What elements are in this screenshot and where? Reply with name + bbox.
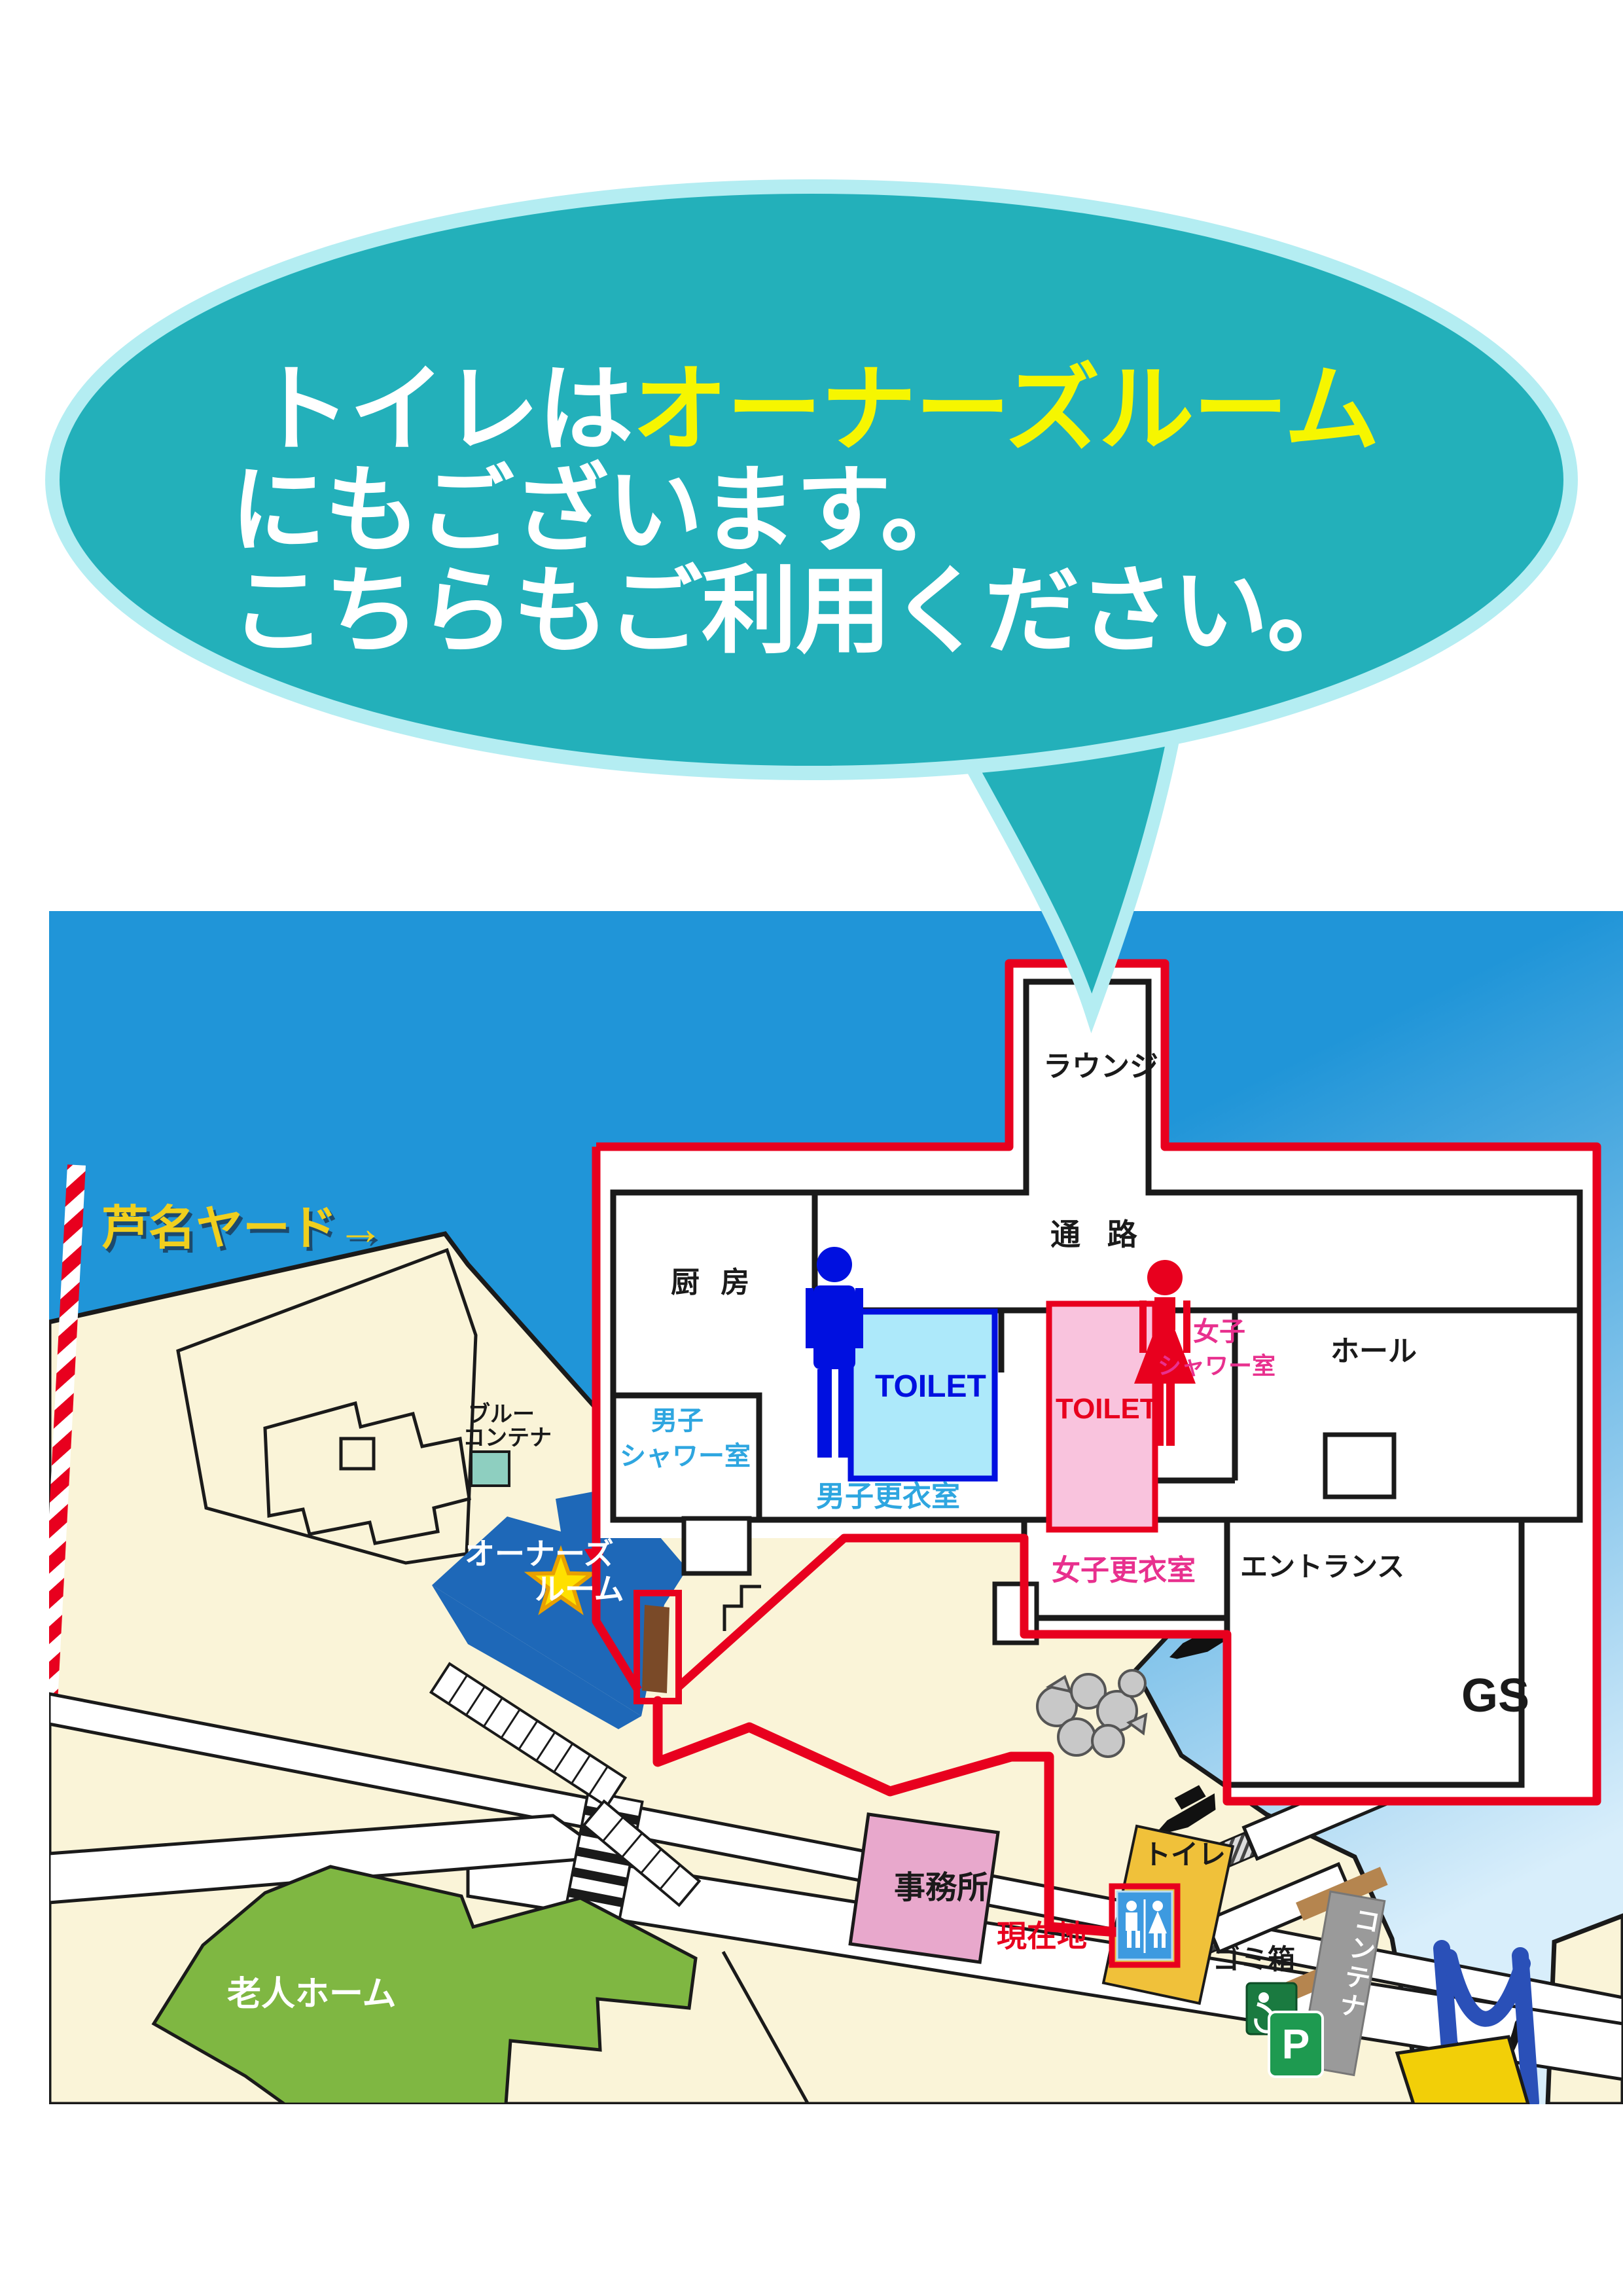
plan-hall-label: ホール [1330, 1336, 1417, 1367]
plan-mens-locker-label: 男子更衣室 [816, 1482, 960, 1512]
bubble-line-3: こちらもご利用ください。 [230, 534, 1361, 672]
speech-bubble-text: トイレはオーナーズルーム にもございます。 こちらもご利用ください。 [0, 0, 1623, 851]
plan-womens-shower-label-2: シャワー室 [1158, 1354, 1275, 1378]
trash-label: ゴミ箱 [1213, 1945, 1295, 1974]
blue-container-label-1: ブルー [468, 1403, 535, 1427]
plan-entrance-label: エントランス [1240, 1552, 1404, 1581]
owners-room-label-2: ルーム [535, 1573, 624, 1605]
gs-label: GS [1461, 1672, 1529, 1721]
office-label: 事務所 [894, 1872, 988, 1905]
yard-label: 芦名ヤード→ [101, 1204, 384, 1254]
parking-sign-letter: P [1282, 2022, 1310, 2066]
blue-container-label-2: コンテナ [463, 1427, 552, 1450]
poster-page: 芦名ヤード→ ブルー コンテナ オーナーズ ルーム 事務所 トイレ 現在地 ゴミ… [0, 0, 1623, 2296]
plan-womens-toilet-label: TOILET [1056, 1394, 1158, 1424]
nursing-home-label: 老人ホーム [227, 1977, 396, 2013]
slope-label: 坂 [1282, 1706, 1315, 1741]
container-label: コンテナ [1334, 1905, 1381, 2023]
toilet-label: トイレ [1143, 1840, 1226, 1869]
plan-kitchen-label: 厨 房 [671, 1268, 756, 1298]
map-labels: 芦名ヤード→ ブルー コンテナ オーナーズ ルーム 事務所 トイレ 現在地 ゴミ… [49, 911, 1623, 2104]
harbor-map: 芦名ヤード→ ブルー コンテナ オーナーズ ルーム 事務所 トイレ 現在地 ゴミ… [49, 911, 1623, 2104]
plan-womens-locker-label: 女子更衣室 [1052, 1556, 1196, 1586]
parking-sign: P [1268, 2011, 1324, 2078]
plan-corridor-label: 通 路 [1050, 1219, 1147, 1250]
plan-lounge-label: ラウンジ [1043, 1052, 1158, 1082]
plan-mens-shower-label-2: シャワー室 [620, 1443, 751, 1470]
plan-womens-shower-label-1: 女子 [1193, 1318, 1245, 1346]
plan-mens-shower-label-1: 男子 [651, 1407, 704, 1435]
owners-room-label-1: オーナーズ [465, 1538, 614, 1570]
plan-mens-toilet-label: TOILET [875, 1371, 986, 1403]
current-location-label: 現在地 [997, 1920, 1087, 1952]
